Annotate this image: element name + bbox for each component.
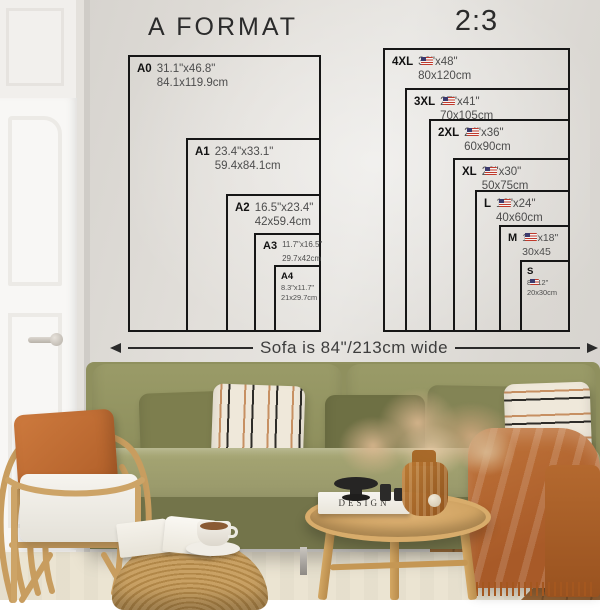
size-code: M	[508, 232, 517, 246]
arrow-line	[128, 347, 253, 349]
us-flag-icon	[499, 199, 511, 207]
us-flag-icon	[421, 57, 433, 65]
size-code: 3XL	[414, 95, 435, 109]
size-code: A2	[235, 201, 250, 215]
size-code: 4XL	[392, 55, 413, 69]
sofa-width-label: Sofa is 84"/213cm wide	[260, 338, 448, 358]
us-flag-icon	[485, 167, 497, 175]
size-inches: 24"x36"	[464, 126, 511, 140]
size-inches: 20"x30"	[482, 165, 529, 179]
us-flag-icon	[443, 97, 455, 105]
size-inches: 8"x12"	[527, 278, 557, 288]
size-inches: 11.7"x16.5"	[282, 240, 322, 254]
arrow-left-icon	[110, 343, 121, 353]
size-cm: 30x45	[522, 246, 551, 259]
arrow-right-icon	[587, 343, 598, 353]
size-inches: 12"x18"	[522, 232, 551, 246]
size-code: L	[484, 197, 491, 211]
size-cm: 60x90cm	[464, 140, 511, 154]
decor-ball	[428, 494, 441, 507]
size-box-s: S8"x12"20x30cm	[520, 260, 570, 332]
size-cm: 20x30cm	[527, 288, 557, 298]
size-cm: 59.4x84.1cm	[215, 159, 281, 173]
size-code: A0	[137, 62, 152, 76]
size-inches: 27"x41"	[440, 95, 493, 109]
left-chart-title: A FORMAT	[118, 13, 328, 42]
size-inches: 16.5"x23.4"	[255, 201, 314, 215]
size-inches: 23.4"x33.1"	[215, 145, 281, 159]
size-inches: 8.3"x11.7"	[281, 283, 317, 293]
size-code: A1	[195, 145, 210, 159]
size-code: XL	[462, 165, 477, 179]
size-cm: 29.7x42cm	[282, 254, 322, 264]
size-inches: 31.1"x46.8"	[157, 62, 228, 76]
wall-molding	[6, 8, 64, 86]
size-inches: 16"x24"	[496, 197, 543, 211]
black-bowl-base	[342, 494, 370, 501]
sofa-leg	[300, 547, 307, 575]
candle-holder	[380, 484, 391, 501]
size-guide-photo: DESIGN A FORMAT 2:3 A031.1"x46.8"84.1x11…	[0, 0, 600, 600]
door-handle-rose	[50, 333, 63, 346]
size-cm: 40x60cm	[496, 211, 543, 225]
size-code: 2XL	[438, 126, 459, 140]
size-box-a4: A48.3"x11.7"21x29.7cm	[274, 265, 321, 332]
size-code: A3	[263, 240, 277, 254]
us-flag-icon	[525, 233, 537, 241]
throw-blanket-fringe	[470, 582, 596, 596]
amber-glass-vase	[402, 462, 448, 516]
door-panel	[8, 116, 62, 286]
size-cm: 21x29.7cm	[281, 293, 317, 303]
size-code: A4	[281, 271, 317, 283]
arrow-line	[455, 347, 580, 349]
size-cm: 42x59.4cm	[255, 215, 314, 229]
size-cm: 84.1x119.9cm	[157, 76, 228, 90]
us-flag-icon	[467, 128, 479, 136]
coffee	[200, 522, 228, 530]
size-code: S	[527, 266, 557, 278]
right-chart-title: 2:3	[383, 5, 570, 38]
sofa-width-annotation: Sofa is 84"/213cm wide	[110, 339, 598, 357]
us-flag-icon	[530, 279, 539, 285]
throw-blanket-drape	[545, 465, 600, 597]
size-cm: 80x120cm	[418, 69, 471, 83]
size-inches: 32"x48"	[418, 55, 471, 69]
